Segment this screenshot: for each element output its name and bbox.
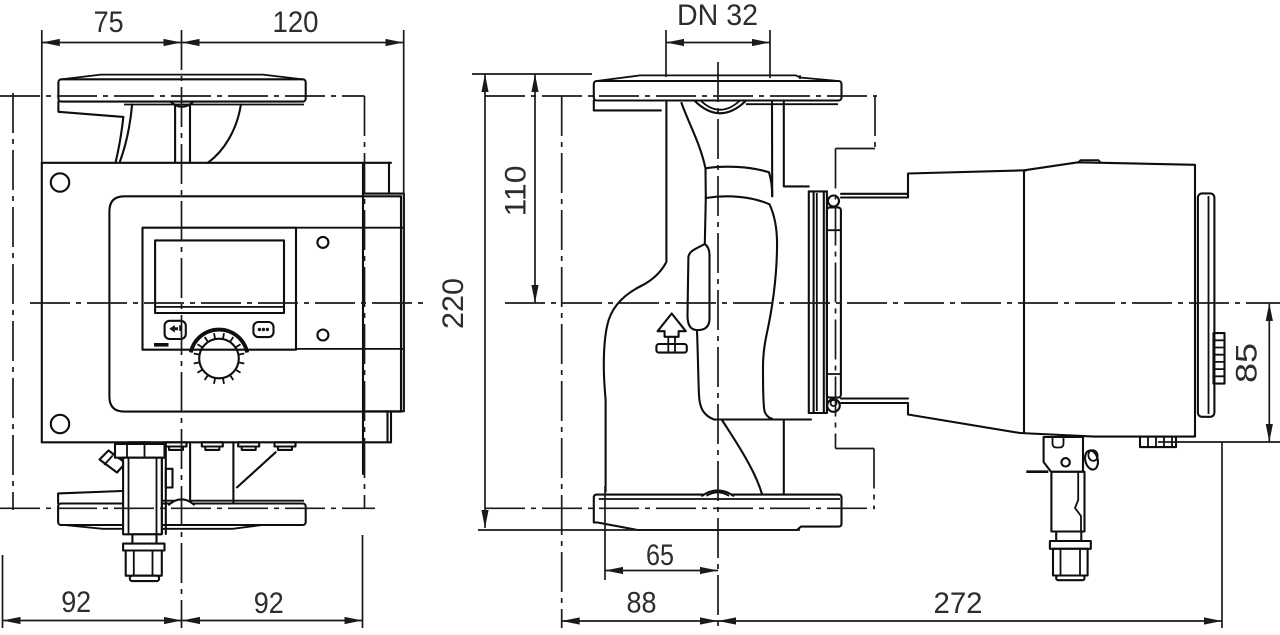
- svg-text:75: 75: [94, 6, 124, 39]
- svg-text:DN 32: DN 32: [677, 0, 758, 32]
- svg-text:85: 85: [1231, 343, 1264, 383]
- svg-text:272: 272: [934, 587, 983, 620]
- svg-text:92: 92: [61, 586, 91, 619]
- svg-text:88: 88: [627, 587, 657, 620]
- svg-text:65: 65: [646, 539, 674, 572]
- svg-text:120: 120: [273, 6, 319, 39]
- svg-text:110: 110: [500, 166, 533, 217]
- svg-text:92: 92: [254, 587, 284, 620]
- svg-text:220: 220: [437, 278, 470, 329]
